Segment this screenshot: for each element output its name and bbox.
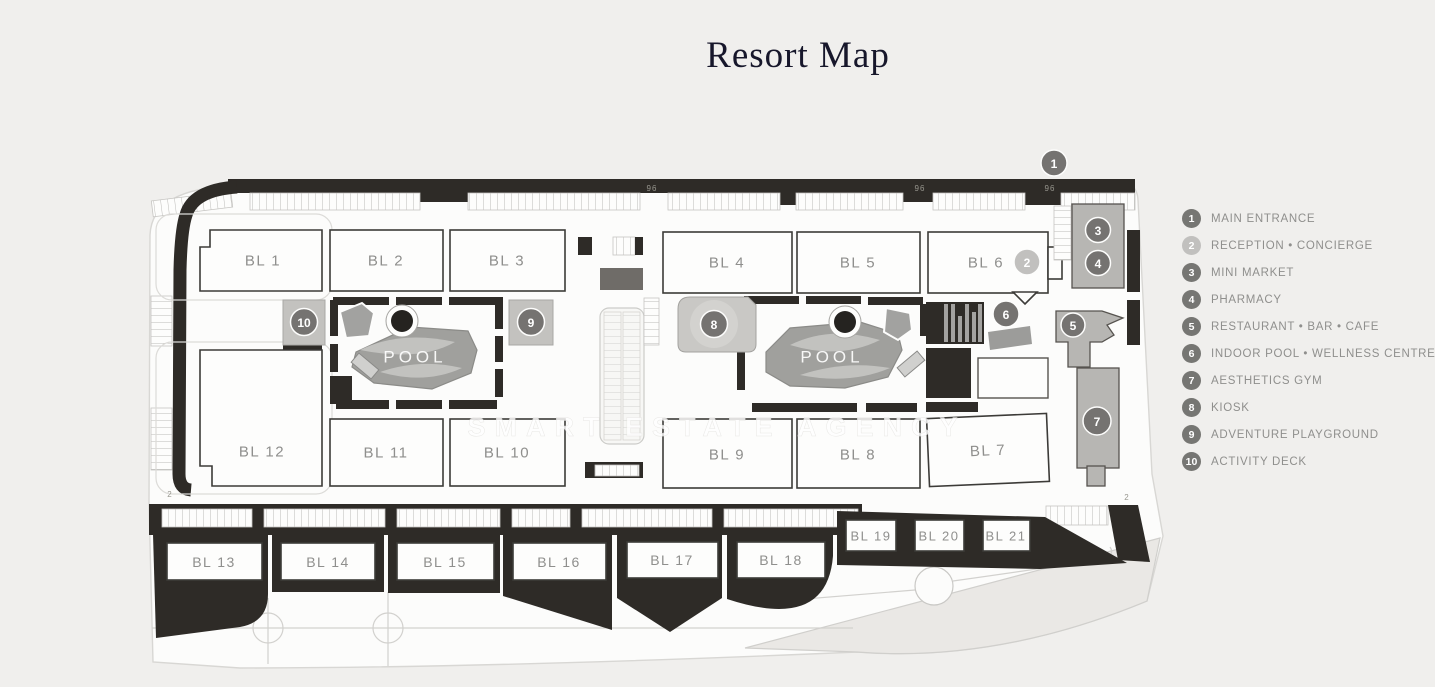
- legend-marker-1: 1: [1182, 209, 1201, 228]
- svg-text:2: 2: [1024, 256, 1031, 270]
- legend-item-restaurant: 5 RESTAURANT • BAR • CAFE: [1182, 317, 1435, 336]
- right-road: [1127, 300, 1140, 345]
- marker-10-activity-deck[interactable]: 10: [291, 309, 318, 336]
- svg-text:5: 5: [1070, 319, 1077, 333]
- building-bl13[interactable]: BL 13: [153, 534, 268, 638]
- legend-marker-10: 10: [1182, 452, 1201, 471]
- building-bl19[interactable]: BL 19: [846, 520, 896, 551]
- watermark: SMART ESTATE AGENCY: [467, 412, 966, 442]
- marker-1-main-entrance[interactable]: 1: [1041, 150, 1067, 176]
- legend-item-kiosk: 8 KIOSK: [1182, 398, 1435, 417]
- svg-text:BL 5: BL 5: [840, 255, 876, 272]
- building-bl14[interactable]: BL 14: [272, 534, 384, 592]
- svg-text:BL 20: BL 20: [919, 529, 960, 544]
- svg-text:POOL: POOL: [383, 348, 446, 367]
- svg-text:10: 10: [297, 316, 311, 330]
- jacuzzi: [391, 310, 413, 332]
- building-bl4[interactable]: BL 4: [663, 232, 792, 293]
- svg-text:BL 11: BL 11: [363, 445, 408, 462]
- legend-marker-3: 3: [1182, 263, 1201, 282]
- svg-text:7: 7: [1094, 415, 1101, 429]
- svg-text:BL 21: BL 21: [986, 529, 1027, 544]
- svg-text:3: 3: [1095, 224, 1102, 238]
- legend-item-pharmacy: 4 PHARMACY: [1182, 290, 1435, 309]
- legend-marker-8: 8: [1182, 398, 1201, 417]
- svg-text:BL 17: BL 17: [650, 552, 694, 568]
- marker-7-gym[interactable]: 7: [1083, 407, 1111, 435]
- marker-3-mini-market[interactable]: 3: [1086, 218, 1111, 243]
- svg-text:BL 18: BL 18: [759, 552, 803, 568]
- svg-text:BL 3: BL 3: [489, 253, 525, 270]
- svg-text:BL 9: BL 9: [709, 447, 745, 464]
- tree-icon: 96: [647, 184, 658, 193]
- jacuzzi: [834, 311, 856, 333]
- building-bl11[interactable]: BL 11: [330, 419, 443, 486]
- legend-item-activity-deck: 10 ACTIVITY DECK: [1182, 452, 1435, 471]
- legend-item-indoor-pool: 6 INDOOR POOL • WELLNESS CENTRE: [1182, 344, 1435, 363]
- svg-text:BL 2: BL 2: [368, 253, 404, 270]
- building-bl12[interactable]: BL 12: [200, 350, 322, 486]
- tree-icon: 2: [1124, 493, 1129, 502]
- stairs: [644, 298, 659, 345]
- legend-marker-7: 7: [1182, 371, 1201, 390]
- svg-text:BL 12: BL 12: [239, 444, 285, 461]
- resort-map-page: Resort Map: [0, 0, 1435, 687]
- marker-6-indoor-pool[interactable]: 6: [993, 301, 1019, 327]
- building-bl3[interactable]: BL 3: [450, 230, 565, 291]
- svg-text:BL 1: BL 1: [245, 253, 281, 270]
- legend-marker-5: 5: [1182, 317, 1201, 336]
- building-bl5[interactable]: BL 5: [797, 232, 920, 293]
- tree-icon: 96: [1045, 184, 1056, 193]
- building-bl20[interactable]: BL 20: [915, 520, 964, 551]
- svg-text:BL 8: BL 8: [840, 447, 876, 464]
- legend-item-gym: 7 AESTHETICS GYM: [1182, 371, 1435, 390]
- svg-text:4: 4: [1095, 257, 1102, 271]
- legend-marker-9: 9: [1182, 425, 1201, 444]
- svg-text:BL 10: BL 10: [484, 445, 530, 462]
- legend-marker-6: 6: [1182, 344, 1201, 363]
- svg-text:1: 1: [1051, 157, 1058, 171]
- svg-text:BL 6: BL 6: [968, 255, 1004, 272]
- svg-text:8: 8: [711, 318, 718, 332]
- marker-2-reception[interactable]: 2: [1014, 249, 1040, 275]
- svg-text:BL 15: BL 15: [423, 554, 467, 570]
- svg-text:9: 9: [528, 316, 535, 330]
- svg-text:BL 19: BL 19: [851, 529, 892, 544]
- tree-icon: 2: [167, 490, 172, 499]
- svg-text:BL 14: BL 14: [306, 554, 350, 570]
- svg-text:POOL: POOL: [800, 348, 863, 367]
- marker-8-kiosk[interactable]: 8: [701, 311, 728, 338]
- marker-4-pharmacy[interactable]: 4: [1086, 251, 1111, 276]
- svg-text:BL 7: BL 7: [970, 442, 1007, 461]
- legend-marker-4: 4: [1182, 290, 1201, 309]
- legend-item-reception: 2 RECEPTION • CONCIERGE: [1182, 236, 1435, 255]
- svg-text:6: 6: [1003, 308, 1010, 322]
- marker-9-playground[interactable]: 9: [518, 309, 545, 336]
- legend-marker-2: 2: [1182, 236, 1201, 255]
- legend-item-mini-market: 3 MINI MARKET: [1182, 263, 1435, 282]
- svg-text:BL 13: BL 13: [192, 554, 236, 570]
- building-bl1[interactable]: BL 1: [200, 230, 322, 291]
- tree-icon: 96: [915, 184, 926, 193]
- svg-text:BL 16: BL 16: [537, 554, 581, 570]
- marker-5-restaurant[interactable]: 5: [1061, 313, 1085, 337]
- map-legend: 1 MAIN ENTRANCE 2 RECEPTION • CONCIERGE …: [1182, 209, 1435, 471]
- building-bl6[interactable]: BL 6: [928, 232, 1062, 304]
- right-road: [1127, 230, 1140, 292]
- roundabout: [915, 567, 953, 605]
- building-bl15[interactable]: BL 15: [388, 534, 500, 593]
- building-bl2[interactable]: BL 2: [330, 230, 443, 291]
- legend-item-playground: 9 ADVENTURE PLAYGROUND: [1182, 425, 1435, 444]
- legend-item-main-entrance: 1 MAIN ENTRANCE: [1182, 209, 1435, 228]
- svg-text:BL 4: BL 4: [709, 255, 745, 272]
- building-bl21[interactable]: BL 21: [983, 520, 1030, 551]
